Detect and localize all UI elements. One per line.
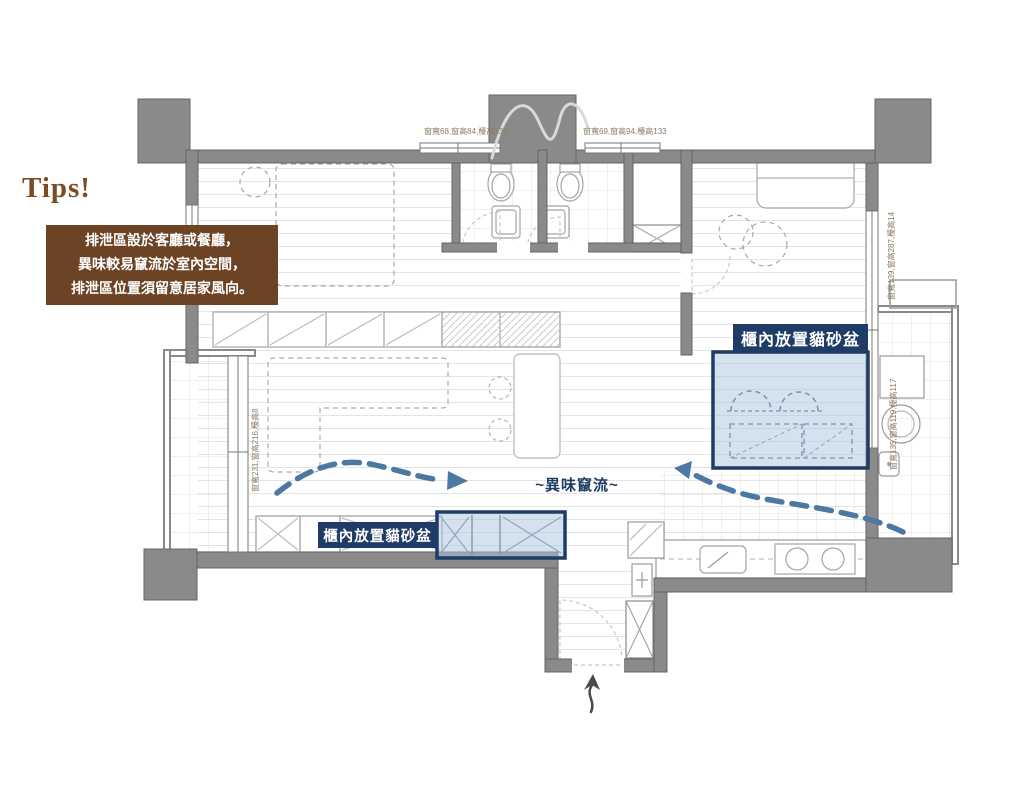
window-annotation-top-right: 窗寬69,窗高94,檯高133	[583, 126, 667, 137]
window-annotation-right-upper: 窗寬139,窗高287,檯高14	[886, 212, 897, 300]
window-annotation-left: 窗寬231,窗高216,檯高8	[250, 408, 261, 492]
litter-zone-right	[713, 352, 868, 468]
callout-litter-cabinet-bottom: 櫃內放置貓砂盆	[318, 522, 437, 548]
tips-line-2: 異味較易竄流於室內空間，	[50, 252, 274, 276]
window-annotation-top-left: 窗寬68,窗高84,檯高133	[424, 126, 508, 137]
tips-line-3: 排泄區位置須留意居家風向。	[50, 276, 274, 300]
tips-line-1: 排泄區設於客廳或餐廳，	[50, 228, 274, 252]
window-annotation-right-lower: 窗寬135,窗高119,檯高117	[888, 379, 899, 470]
floor-plan-page: Tips! 排泄區設於客廳或餐廳， 異味較易竄流於室內空間， 排泄區位置須留意居…	[0, 0, 1024, 794]
callout-litter-cabinet-right: 櫃內放置貓砂盆	[733, 324, 868, 351]
tips-title: Tips!	[22, 172, 91, 205]
north-arrow-icon	[584, 674, 600, 712]
litter-zone-bottom	[437, 512, 565, 558]
airflow-label: ~異味竄流~	[512, 474, 642, 495]
floor-plan-svg	[0, 0, 1024, 794]
tips-box: 排泄區設於客廳或餐廳， 異味較易竄流於室內空間， 排泄區位置須留意居家風向。	[46, 225, 278, 305]
